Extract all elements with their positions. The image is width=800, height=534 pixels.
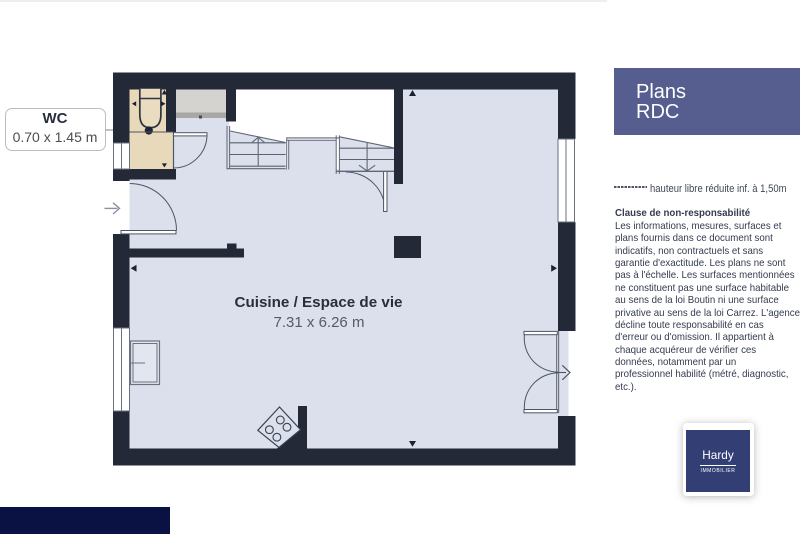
svg-text:Cuisine / Espace de vie: Cuisine / Espace de vie <box>235 294 403 311</box>
svg-text:7.31 x 6.26 m: 7.31 x 6.26 m <box>274 314 365 331</box>
